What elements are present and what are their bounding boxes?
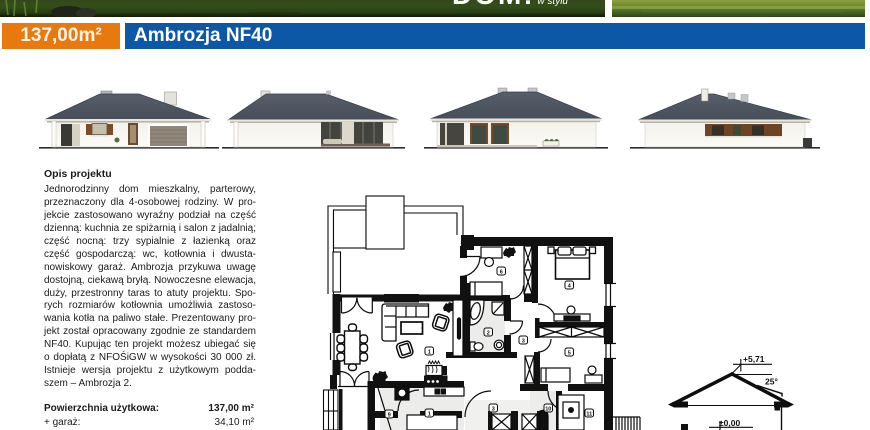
svg-text:10: 10 xyxy=(545,406,551,412)
svg-text:1: 1 xyxy=(428,411,431,417)
svg-text:3: 3 xyxy=(492,406,495,412)
svg-text:1: 1 xyxy=(428,349,431,355)
svg-text:6: 6 xyxy=(500,269,503,275)
svg-text:25°: 25° xyxy=(765,377,778,387)
svg-text:2: 2 xyxy=(487,330,490,336)
svg-text:5: 5 xyxy=(568,350,571,356)
svg-text:±0,00: ±0,00 xyxy=(719,418,740,428)
svg-text:3: 3 xyxy=(522,338,525,344)
svg-text:+5,71: +5,71 xyxy=(743,354,765,364)
svg-text:11: 11 xyxy=(586,411,592,417)
svg-text:9: 9 xyxy=(388,412,391,418)
